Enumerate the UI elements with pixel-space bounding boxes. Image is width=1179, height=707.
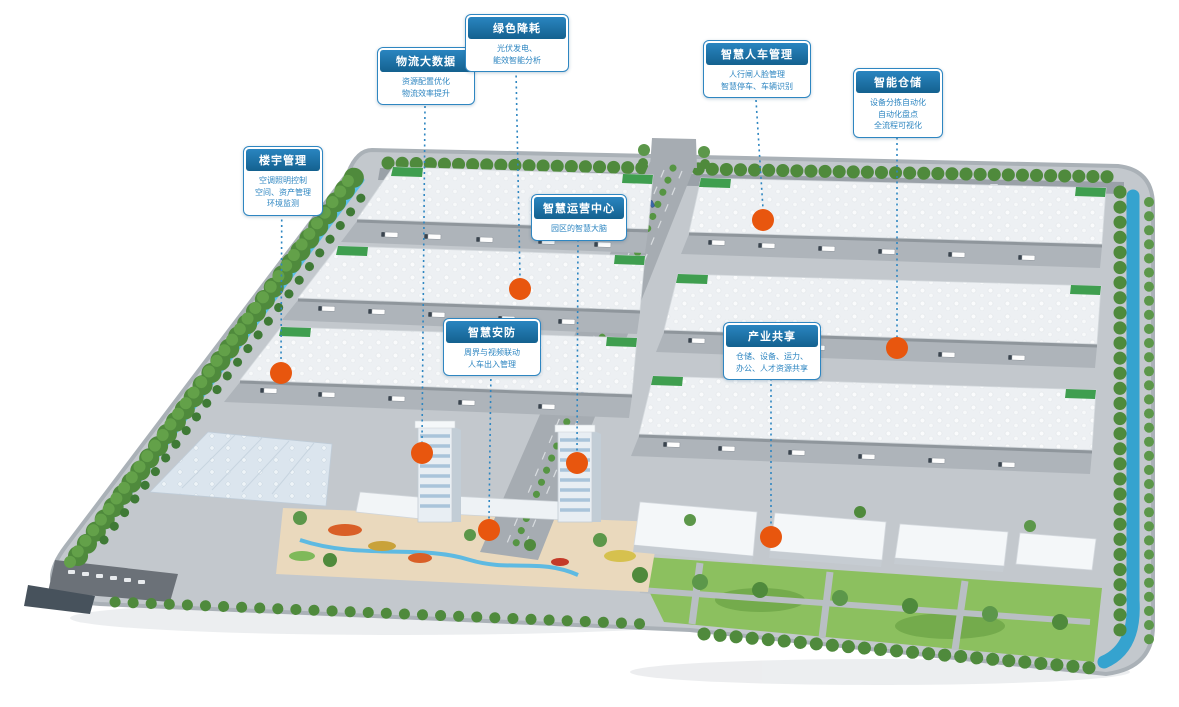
poi-dot-green-energy bbox=[509, 278, 531, 300]
callout-title: 智慧运营中心 bbox=[534, 197, 624, 219]
callout-line: 仓储、设备、运力、 bbox=[727, 351, 817, 363]
callout-line: 资源配置优化 bbox=[381, 76, 471, 88]
poi-dot-smart-security bbox=[478, 519, 500, 541]
callout-line: 能效智能分析 bbox=[469, 55, 565, 67]
callout-line: 周界与视频联动 bbox=[447, 347, 537, 359]
callout-title: 智慧安防 bbox=[446, 321, 538, 343]
callout-industry-sharing: 产业共享 仓储、设备、运力、 办公、人才资源共享 bbox=[723, 322, 821, 380]
callout-line: 环境监测 bbox=[247, 198, 319, 210]
warehouse-row-right-1 bbox=[681, 178, 1106, 268]
callout-people-vehicle: 智慧人车管理 人行闸人脸管理 智慧停车、车辆识别 bbox=[703, 40, 811, 98]
callout-line: 智慧停车、车辆识别 bbox=[707, 81, 807, 93]
poi-dot-industry-sharing bbox=[760, 526, 782, 548]
callout-title: 物流大数据 bbox=[380, 50, 472, 72]
callout-line: 光伏发电、 bbox=[469, 43, 565, 55]
callout-smart-security: 智慧安防 周界与视频联动 人车出入管理 bbox=[443, 318, 541, 376]
callout-title: 产业共享 bbox=[726, 325, 818, 347]
park-3d-render bbox=[0, 0, 1179, 707]
callout-line: 园区的智慧大脑 bbox=[535, 223, 623, 235]
poi-dot-building-management bbox=[270, 362, 292, 384]
poi-dot-operations-center bbox=[566, 452, 588, 474]
callout-line: 人车出入管理 bbox=[447, 359, 537, 371]
poi-dot-smart-warehouse bbox=[886, 337, 908, 359]
callout-title: 智能仓储 bbox=[856, 71, 940, 93]
callout-green-energy: 绿色降耗 光伏发电、 能效智能分析 bbox=[465, 14, 569, 72]
callout-line: 办公、人才资源共享 bbox=[727, 363, 817, 375]
poi-dot-logistics-bigdata bbox=[411, 442, 433, 464]
callout-smart-warehouse: 智能仓储 设备分拣自动化 自动化盘点 全流程可视化 bbox=[853, 68, 943, 138]
poi-dot-people-vehicle bbox=[752, 209, 774, 231]
callout-line: 空间、资产管理 bbox=[247, 187, 319, 199]
callout-line: 自动化盘点 bbox=[857, 109, 939, 121]
callout-title: 绿色降耗 bbox=[468, 17, 566, 39]
callout-logistics-bigdata: 物流大数据 资源配置优化 物流效率提升 bbox=[377, 47, 475, 105]
callout-line: 全流程可视化 bbox=[857, 120, 939, 132]
aerial-park-figure: 楼宇管理 空调照明控制 空间、资产管理 环境监测 物流大数据 资源配置优化 物流… bbox=[0, 0, 1179, 707]
callout-title: 楼宇管理 bbox=[246, 149, 320, 171]
callout-line: 空调照明控制 bbox=[247, 175, 319, 187]
callout-title: 智慧人车管理 bbox=[706, 43, 808, 65]
callout-building-management: 楼宇管理 空调照明控制 空间、资产管理 环境监测 bbox=[243, 146, 323, 216]
callout-operations-center: 智慧运营中心 园区的智慧大脑 bbox=[531, 194, 627, 241]
callout-line: 人行闸人脸管理 bbox=[707, 69, 807, 81]
callout-line: 物流效率提升 bbox=[381, 88, 471, 100]
callout-line: 设备分拣自动化 bbox=[857, 97, 939, 109]
